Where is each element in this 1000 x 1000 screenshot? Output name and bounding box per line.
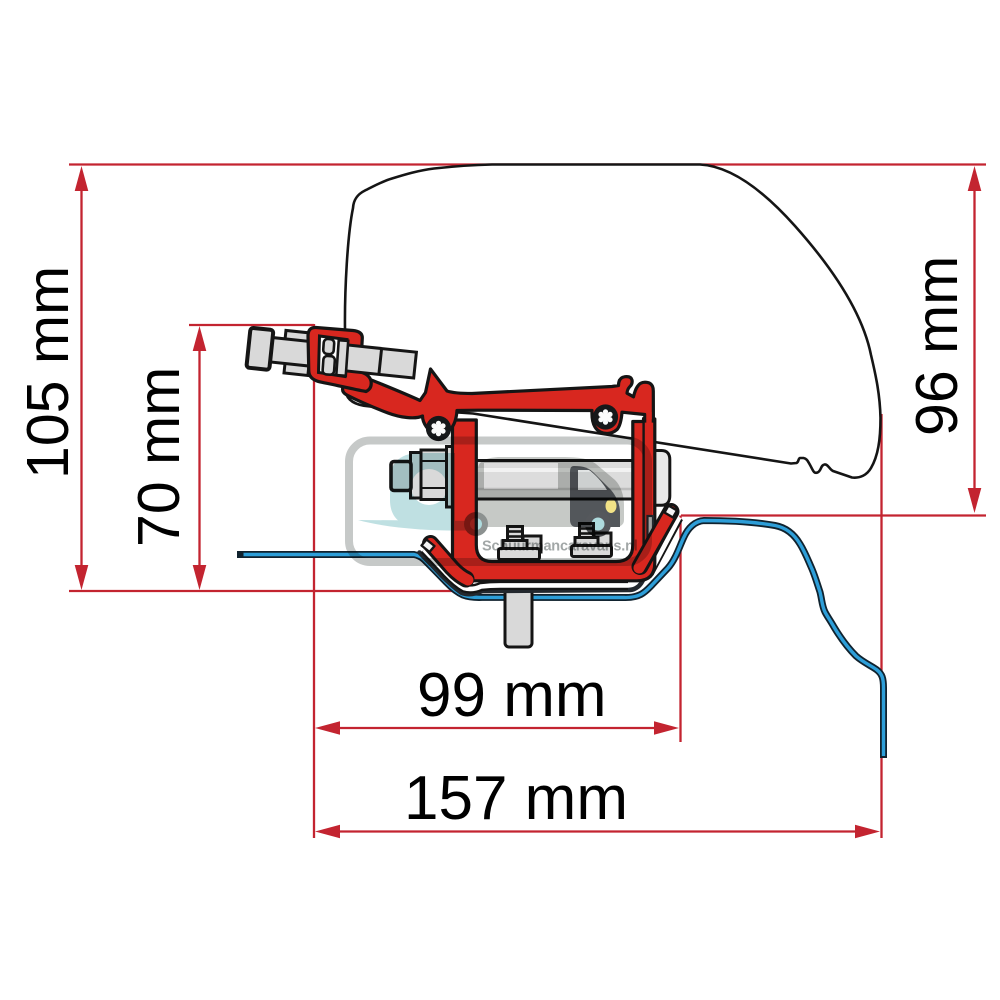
svg-text:70 mm: 70 mm	[126, 367, 192, 547]
svg-text:96 mm: 96 mm	[904, 256, 970, 436]
svg-text:105 mm: 105 mm	[15, 266, 81, 479]
svg-text:157 mm: 157 mm	[404, 764, 628, 833]
svg-text:Schuurmancaravans.nl: Schuurmancaravans.nl	[482, 539, 638, 555]
svg-text:99 mm: 99 mm	[417, 661, 606, 730]
